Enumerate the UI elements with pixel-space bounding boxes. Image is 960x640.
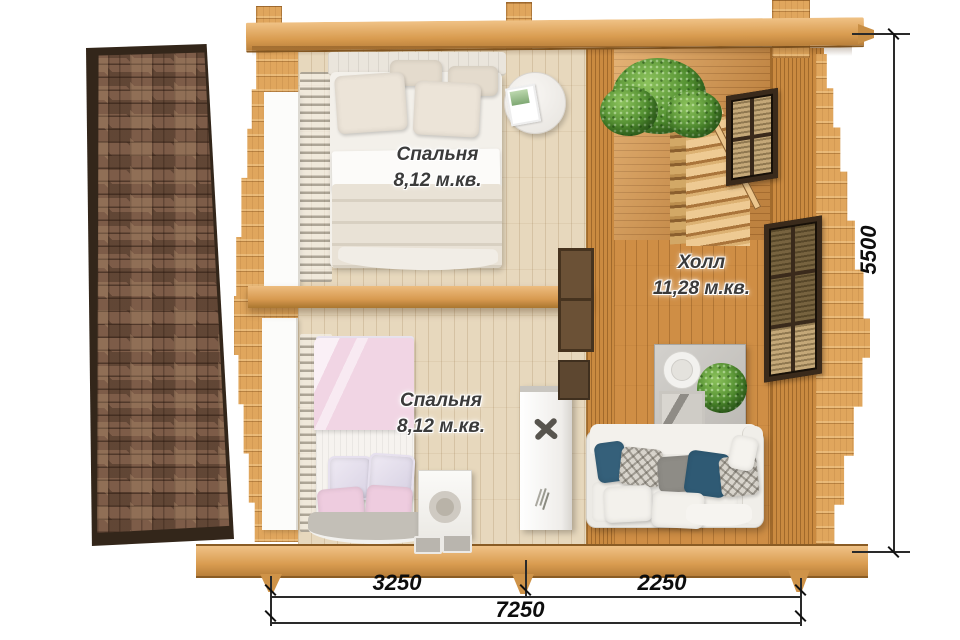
dim-label-5500: 5500 [856,190,882,310]
bed-1-pillow-right [413,80,482,137]
dim-ext-5500-top [852,33,910,35]
bottom-wall-beam [196,544,868,578]
door-frame-bedroom-1 [558,248,594,304]
nightstand [418,470,472,538]
window-lower-pane [795,273,815,321]
window-upper-pane [733,139,750,178]
dried-plant-decor [539,488,546,506]
bottom-log-end-middle [510,574,536,594]
dim-line-5500 [893,34,895,552]
curtain-panel-bedroom-2 [262,318,298,530]
door-frame-bedroom-2 [558,298,594,352]
window-upper-pane [754,136,771,175]
room-label-bedroom-2: Спальня 8,12 м.кв. [352,388,530,440]
floor-plan-canvas: Спальня 8,12 м.кв. Спальня 8,12 м.кв. [0,0,960,640]
bedroom-1-area: 8,12 м.кв. [350,168,525,194]
window-upper [726,88,778,186]
coffee-table [654,344,746,432]
hanging-plant-blob-2 [600,86,658,136]
bedroom-divider-beam [248,286,592,308]
hall-area: 11,28 м.кв. [634,276,769,302]
nightstand-lamp [429,491,461,523]
bedroom-2-area: 8,12 м.кв. [352,414,530,440]
room-label-hall: Холл 11,28 м.кв. [634,250,769,302]
hanging-plant-blob-3 [666,90,722,138]
sofa-front-pillow-left [603,485,653,523]
curtain-panel-bedroom-1 [264,92,300,290]
window-upper-pane [754,96,771,135]
bedroom-2-name: Спальня [352,388,530,414]
window-upper-pane [733,99,750,138]
sofa [586,424,766,528]
tray-right [442,534,472,553]
table-card [505,84,541,127]
dim-label-7250: 7250 [470,597,570,623]
decor-plate-inner [671,359,693,381]
tray-left [414,536,442,554]
hall-name: Холл [634,250,769,276]
roof-shingles [86,44,234,546]
table-card-picture [510,89,530,106]
room-label-bedroom-1: Спальня 8,12 м.кв. [350,142,525,194]
bedroom-1-name: Спальня [350,142,525,168]
window-lower-pane [795,322,815,370]
window-lower-pane [771,326,791,374]
window-lower-pane [771,227,791,275]
window-lower-pane [771,277,791,325]
sofa-throw-blanket [686,504,752,526]
dim-label-2250: 2250 [612,570,712,596]
window-lower [764,215,822,382]
wall-shelf-dark [558,360,590,400]
dim-ext-5500-bottom [852,551,910,553]
dim-label-3250: 3250 [347,570,447,596]
bed-1-pillow-left [334,72,408,135]
roof [86,44,234,546]
window-lower-pane [795,224,815,272]
